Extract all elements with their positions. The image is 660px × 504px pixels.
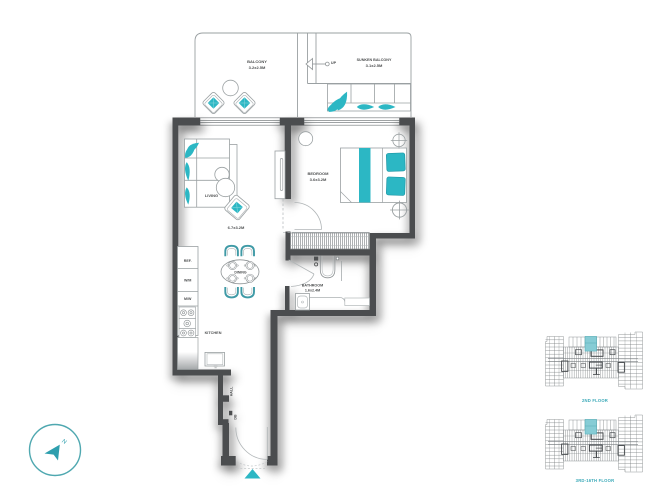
svg-text:W/M: W/M (184, 279, 191, 283)
svg-text:SUNKEN BALCONY: SUNKEN BALCONY (357, 58, 392, 62)
svg-text:KITCHEN: KITCHEN (205, 331, 222, 335)
svg-text:3RD-16TH FLOOR: 3RD-16TH FLOOR (576, 478, 615, 483)
svg-text:HALL: HALL (229, 386, 233, 396)
svg-text:2ND FLOOR: 2ND FLOOR (582, 398, 608, 403)
svg-text:LIVING: LIVING (205, 193, 218, 198)
svg-text:M/W: M/W (184, 297, 192, 301)
svg-text:3.6x3.2M: 3.6x3.2M (310, 177, 327, 182)
svg-text:BALCONY: BALCONY (247, 59, 267, 64)
svg-text:DB: DB (234, 414, 238, 420)
svg-text:BEDROOM: BEDROOM (308, 171, 330, 176)
svg-text:REF.: REF. (184, 259, 192, 263)
svg-text:6.7x3.2M: 6.7x3.2M (228, 225, 245, 230)
svg-text:1.6x2.4M: 1.6x2.4M (305, 289, 320, 293)
svg-text:UP: UP (331, 61, 337, 65)
svg-text:3.1x2.5M: 3.1x2.5M (366, 63, 383, 68)
svg-text:3.2x2.5M: 3.2x2.5M (249, 65, 266, 70)
svg-text:DINING: DINING (234, 270, 247, 274)
svg-text:BATHROOM: BATHROOM (302, 284, 323, 288)
